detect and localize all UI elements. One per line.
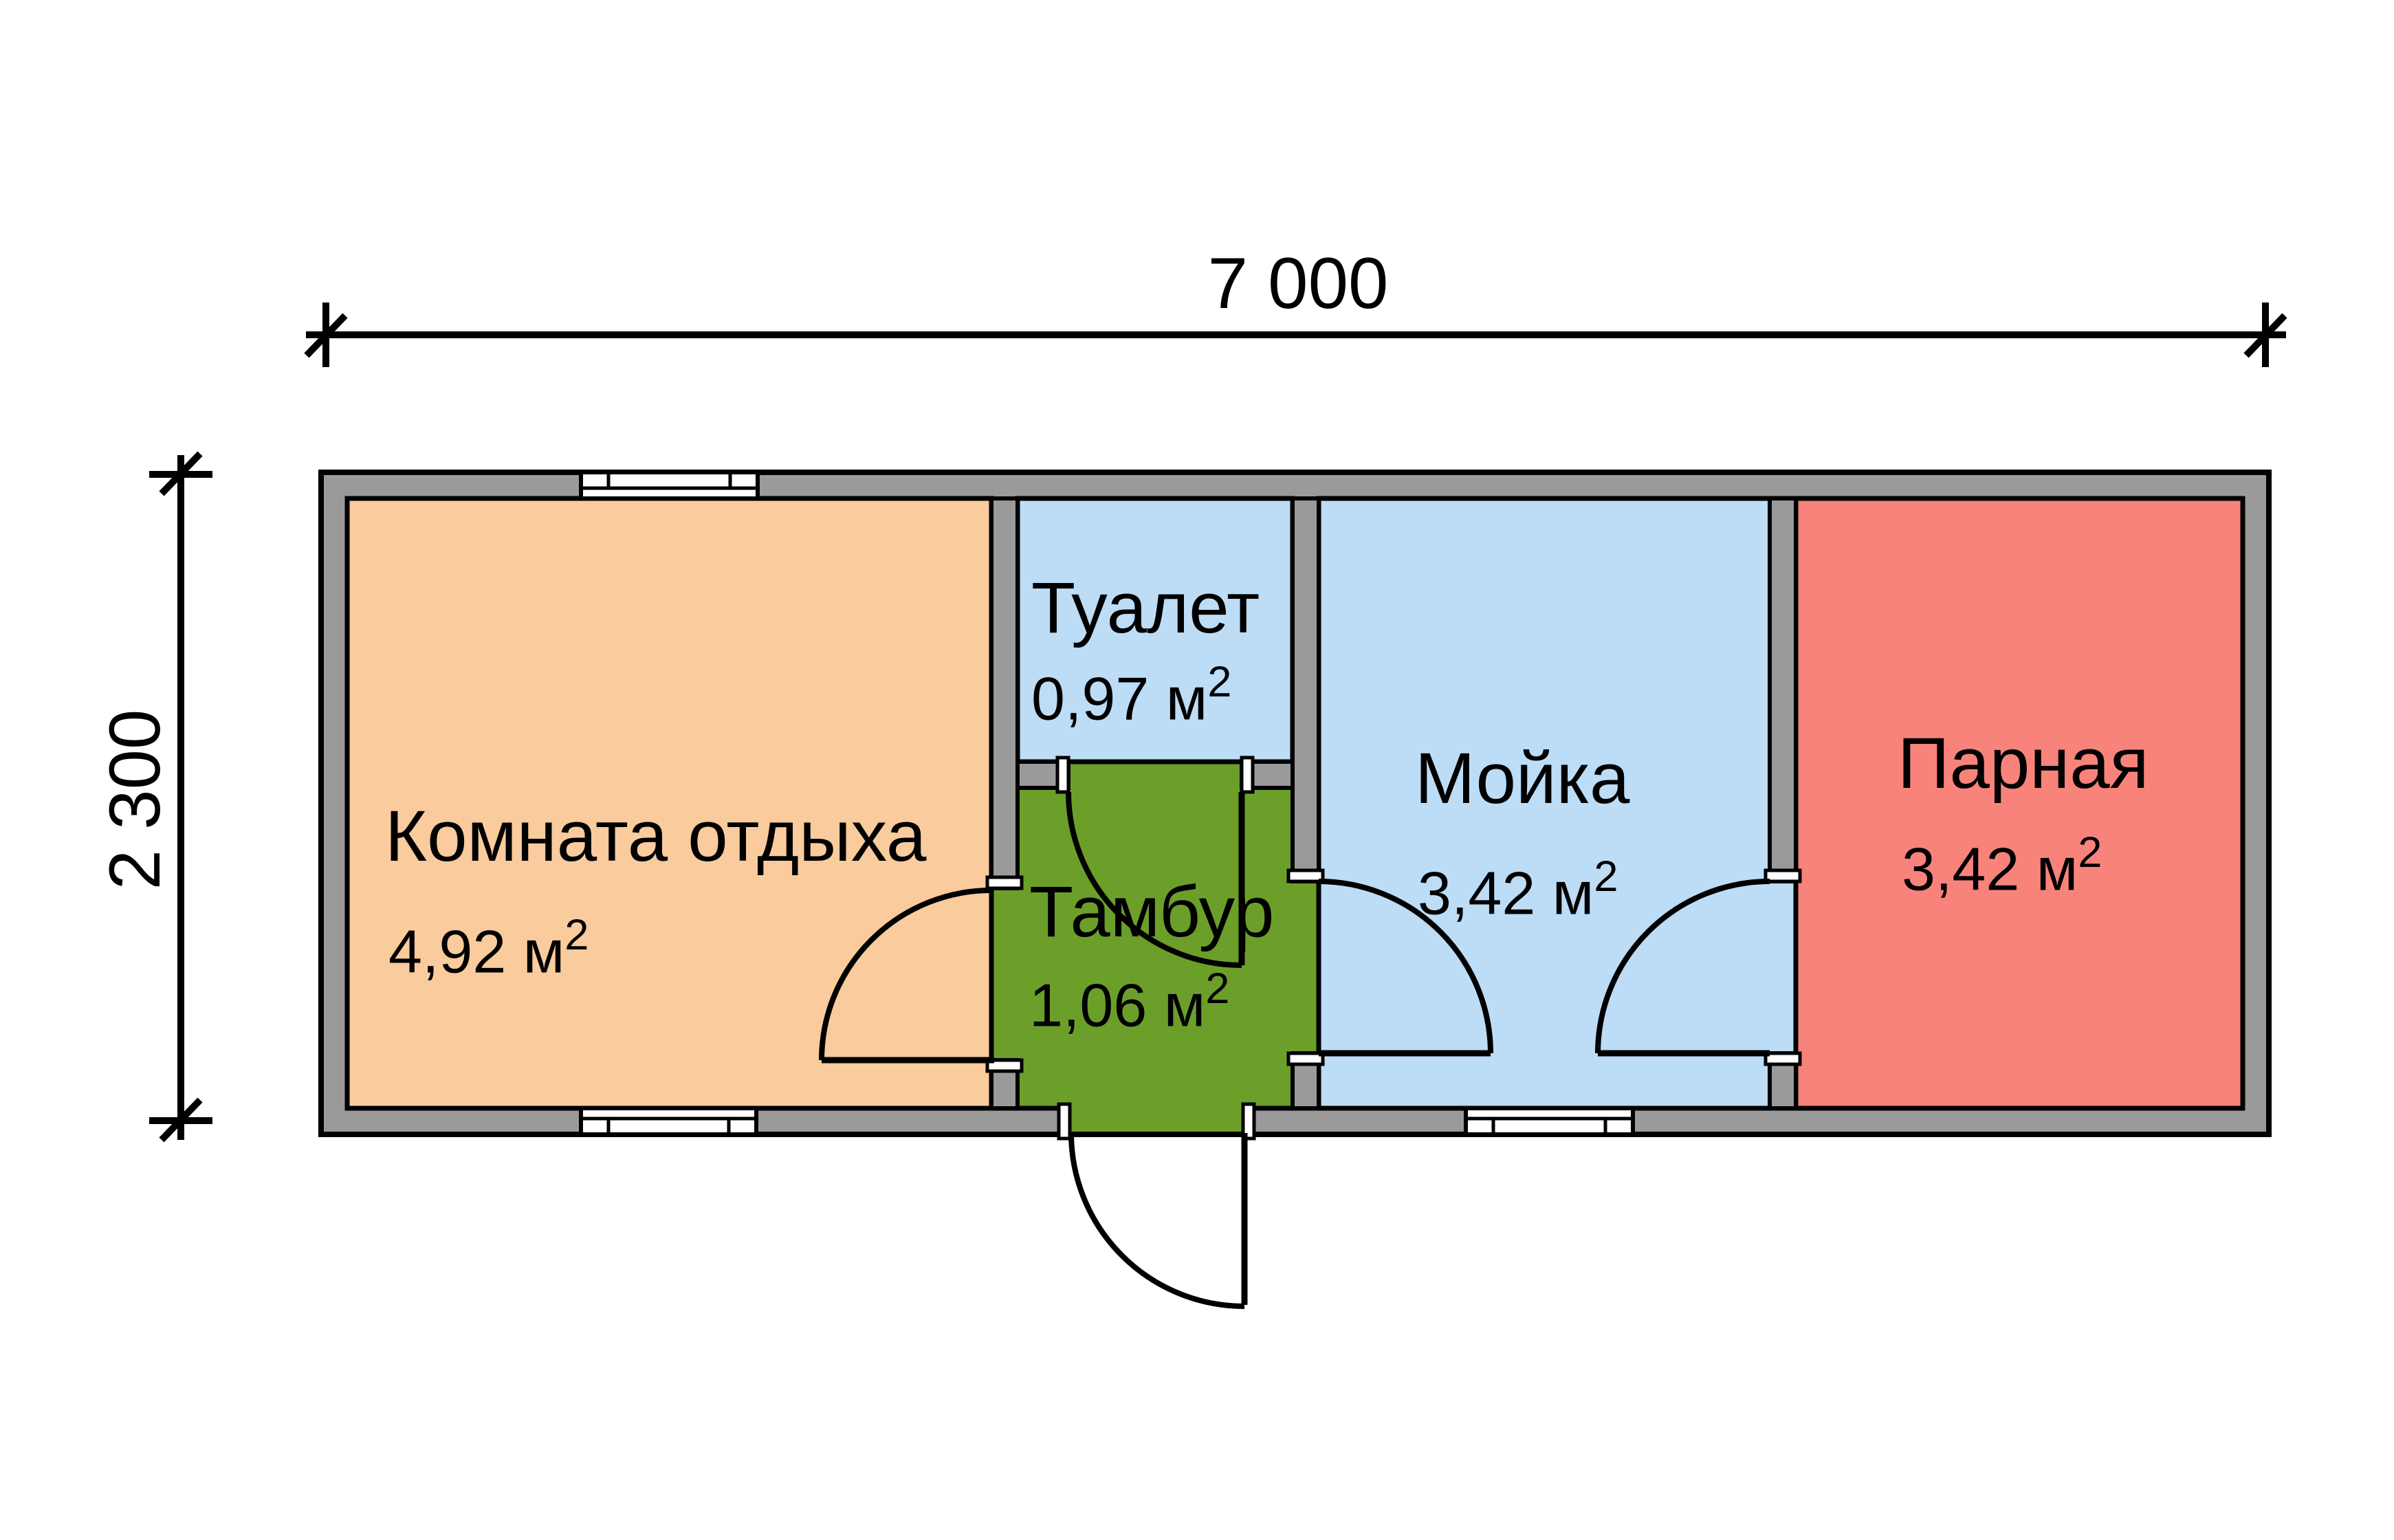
door-entrance xyxy=(1071,1133,1244,1306)
room-label-steam-room: Парная xyxy=(1898,726,2149,802)
room-area-washroom-value: 3,42 м xyxy=(1418,859,1594,927)
room-label-toilet: Туалет xyxy=(1031,571,1260,646)
room-area-steam-room-value: 3,42 м xyxy=(1902,835,2078,903)
partition-washroom-top xyxy=(1293,498,1319,881)
partition-lounge-top xyxy=(991,498,1018,888)
room-area-steam-room: 3,42 м2 xyxy=(1902,832,2102,901)
window-bottom-washroom xyxy=(1466,1108,1633,1134)
dimension-width-label: 7 000 xyxy=(1154,247,1442,320)
room-area-washroom: 3,42 м2 xyxy=(1418,856,1618,925)
floor-plan-page: 7 000 2 300 Комната отдыха 4,92 м2 Туале… xyxy=(0,0,2394,1540)
dimension-height-label: 2 300 xyxy=(98,628,173,971)
room-label-washroom: Мойка xyxy=(1415,741,1629,817)
room-area-tambour: 1,06 м2 xyxy=(1029,968,1229,1037)
room-area-toilet: 0,97 м2 xyxy=(1031,661,1231,731)
room-label-lounge: Комната отдыха xyxy=(385,799,926,874)
room-area-tambour-value: 1,06 м xyxy=(1029,971,1205,1039)
room-label-tambour: Тамбур xyxy=(1029,874,1274,950)
room-area-lounge: 4,92 м2 xyxy=(388,914,589,984)
room-area-toilet-sup: 2 xyxy=(1207,658,1231,706)
tambour-entry-strip xyxy=(1070,1103,1243,1132)
room-area-lounge-value: 4,92 м xyxy=(388,917,564,985)
room-area-toilet-value: 0,97 м xyxy=(1031,664,1207,732)
partition-steam-top xyxy=(1770,498,1796,881)
room-area-lounge-sup: 2 xyxy=(564,911,589,959)
room-area-steam-room-sup: 2 xyxy=(2078,828,2102,877)
window-bottom-lounge xyxy=(581,1108,756,1134)
room-area-tambour-sup: 2 xyxy=(1205,965,1229,1013)
room-area-washroom-sup: 2 xyxy=(1594,852,1618,901)
window-top xyxy=(581,472,758,498)
